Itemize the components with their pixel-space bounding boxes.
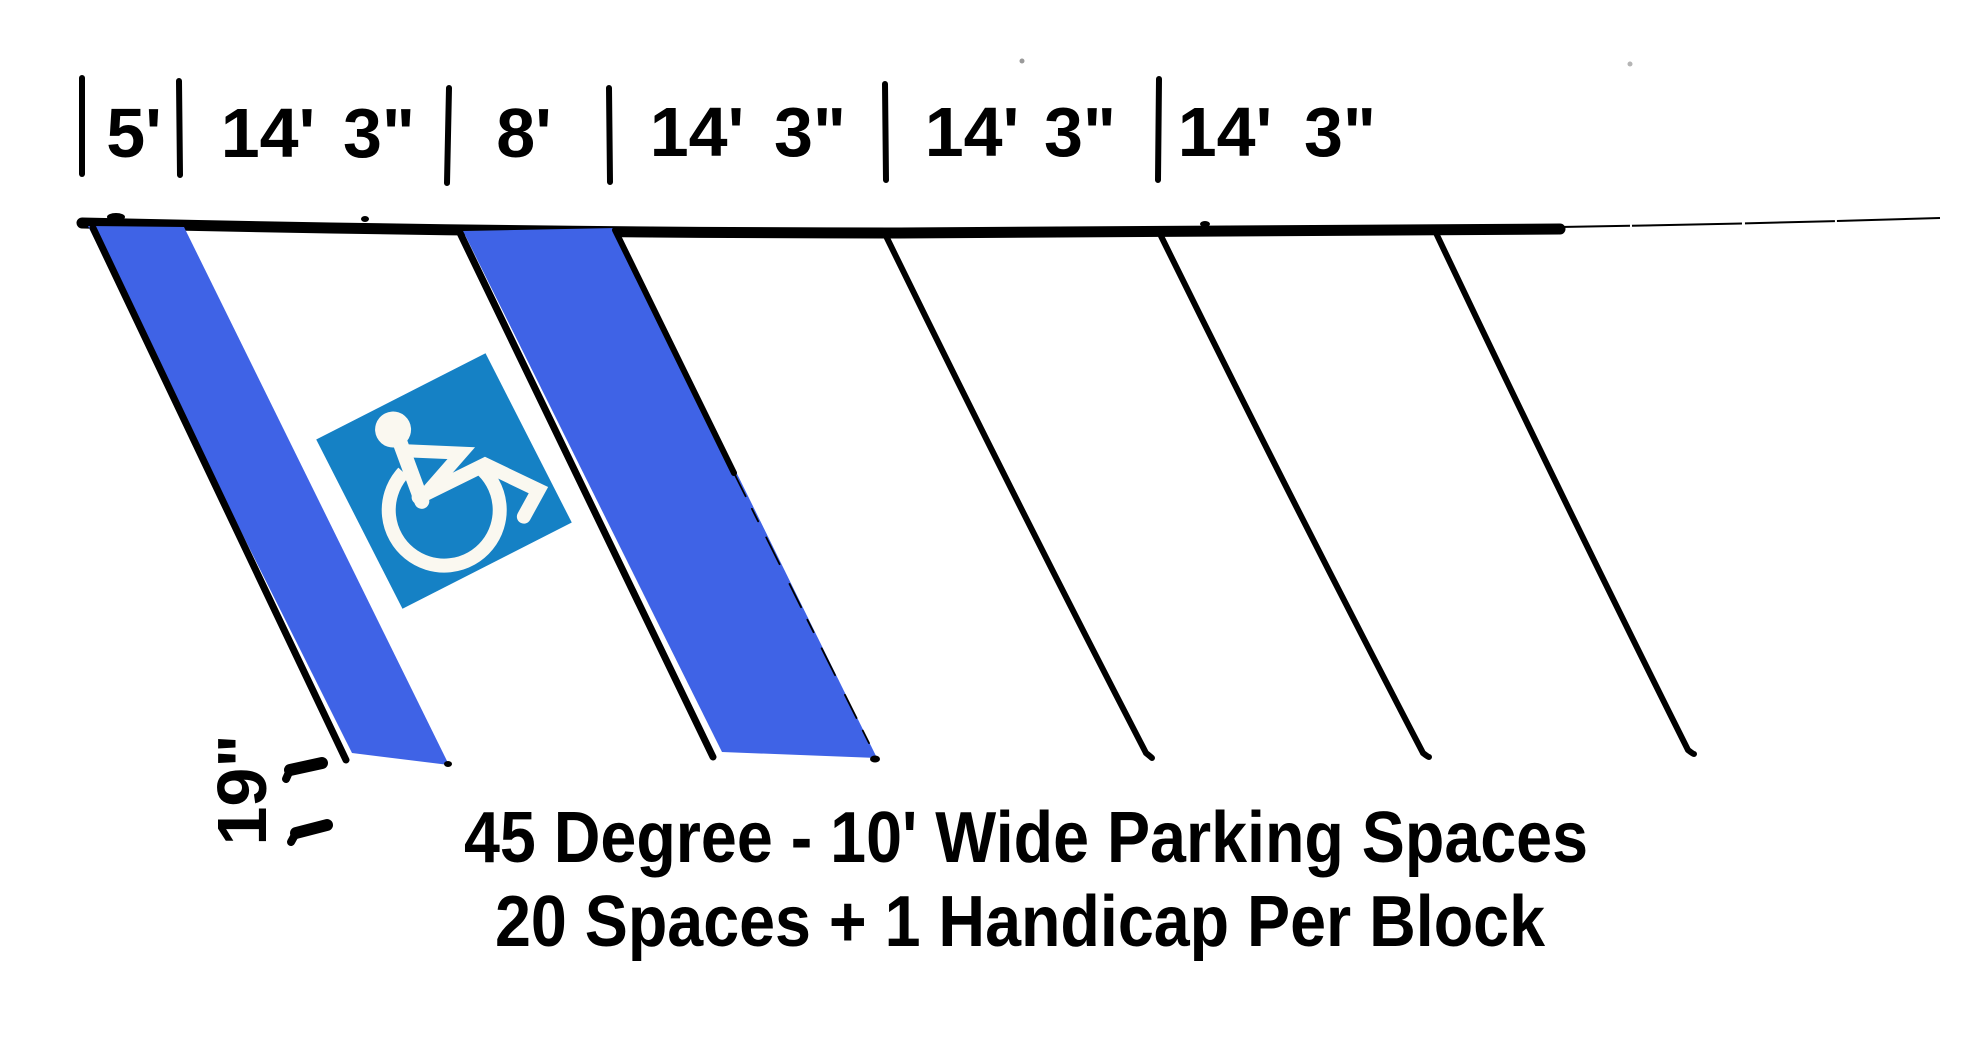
svg-text:3": 3" <box>1304 93 1376 171</box>
svg-text:45 Degree - 10' Wide Parking S: 45 Degree - 10' Wide Parking Spaces <box>464 798 1588 878</box>
svg-text:8': 8' <box>496 94 552 172</box>
svg-text:14': 14' <box>221 94 316 172</box>
svg-text:19": 19" <box>203 734 281 845</box>
svg-text:5': 5' <box>106 94 162 172</box>
svg-text:3": 3" <box>343 94 415 172</box>
svg-text:14': 14' <box>650 93 745 171</box>
svg-text:14': 14' <box>1178 93 1273 171</box>
svg-text:3": 3" <box>1044 93 1116 171</box>
svg-text:14': 14' <box>925 93 1020 171</box>
svg-text:20 Spaces + 1 Handicap Per Blo: 20 Spaces + 1 Handicap Per Block <box>495 882 1546 962</box>
svg-text:3": 3" <box>774 93 846 171</box>
